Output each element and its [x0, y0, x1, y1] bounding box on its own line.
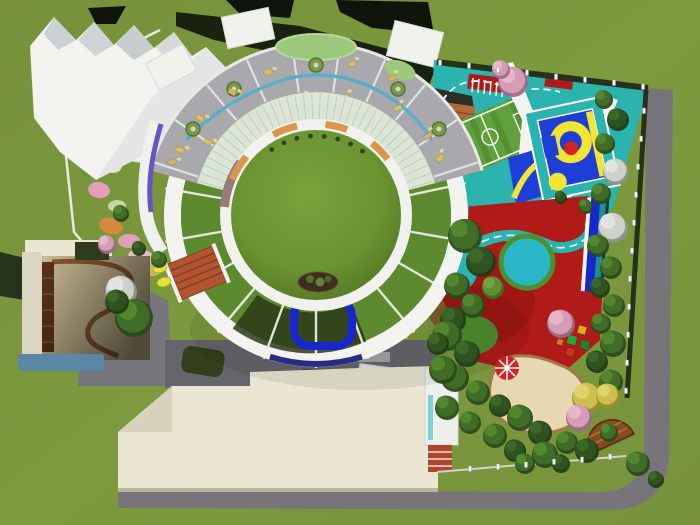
classroom-furniture: [348, 61, 357, 67]
tree-highlight: [649, 472, 657, 480]
fence-post: [609, 454, 612, 460]
fence-post: [468, 63, 471, 69]
tree-highlight: [460, 412, 471, 423]
tree-highlight: [463, 294, 475, 306]
tree-highlight: [428, 333, 439, 344]
fence-post: [555, 74, 558, 80]
fence-post: [625, 388, 628, 394]
splash-circle: [501, 236, 553, 288]
tree-highlight: [490, 395, 501, 406]
roof-edge: [118, 488, 438, 492]
tree-highlight: [587, 351, 598, 362]
fence-post: [497, 464, 500, 470]
west-hedge: [0, 252, 25, 300]
fence-post: [633, 220, 636, 226]
fence-post: [626, 360, 629, 366]
tree-highlight: [431, 357, 445, 371]
campus-aerial-render: [0, 0, 700, 525]
shrub: [335, 137, 340, 142]
fence-post: [526, 70, 529, 76]
tree-highlight: [509, 406, 522, 419]
tree-highlight: [505, 440, 516, 451]
tree-highlight: [577, 439, 589, 451]
tree-highlight: [483, 277, 494, 288]
fence-post: [628, 304, 631, 310]
fence-post: [553, 459, 556, 465]
tree-highlight: [133, 241, 140, 248]
fence-post: [627, 332, 630, 338]
play-block: [556, 338, 563, 345]
island-center: [437, 127, 442, 132]
roof-pond: [276, 34, 356, 60]
tree-highlight: [534, 443, 547, 456]
fence-post: [497, 67, 500, 73]
fence-post: [642, 84, 645, 90]
planter-shrub: [306, 275, 314, 283]
tree-highlight: [468, 248, 483, 263]
tree-highlight: [549, 311, 563, 325]
fence-post: [635, 192, 638, 198]
fence-post: [584, 77, 587, 83]
play-block: [567, 335, 578, 346]
tree-highlight: [580, 199, 587, 206]
fence-post: [525, 462, 528, 468]
tree-highlight: [601, 257, 612, 268]
water-channel: [18, 354, 104, 371]
tree-highlight: [574, 384, 589, 399]
tree-highlight: [596, 91, 605, 100]
shrub: [269, 147, 274, 152]
annex-glass: [428, 395, 433, 440]
tree-highlight: [601, 370, 613, 382]
shrub: [360, 149, 365, 154]
tree-highlight: [596, 134, 606, 144]
play-block: [577, 325, 587, 335]
tree-highlight: [555, 191, 561, 197]
tree-highlight: [107, 290, 119, 302]
shrub: [308, 134, 313, 139]
tree-highlight: [451, 220, 468, 237]
play-block: [580, 340, 591, 351]
tree-highlight: [628, 452, 640, 464]
tree-highlight: [592, 314, 602, 324]
fence-post: [631, 248, 634, 254]
shrub: [348, 142, 353, 147]
shrub: [294, 136, 299, 141]
tree-highlight: [568, 406, 581, 419]
island-center: [396, 87, 401, 92]
tree-highlight: [99, 236, 108, 245]
fence-post: [469, 466, 472, 472]
fence-post: [637, 164, 640, 170]
planter-shrub-2: [316, 278, 325, 287]
tree-highlight: [530, 421, 542, 433]
tree-highlight: [588, 235, 599, 246]
west-wall: [22, 252, 42, 360]
fence-post: [643, 108, 646, 114]
tree-highlight: [446, 274, 459, 287]
tree-highlight: [601, 424, 610, 433]
fence-post: [629, 276, 632, 282]
tree-highlight: [605, 160, 618, 173]
tree-highlight: [602, 332, 615, 345]
planter-shrub-3: [325, 276, 332, 283]
shrub: [281, 140, 286, 145]
tree-highlight: [557, 432, 568, 443]
tree-highlight: [598, 384, 610, 396]
classroom-furniture: [264, 69, 273, 75]
tree-highlight: [456, 342, 469, 355]
tree-highlight: [437, 396, 449, 408]
tree-highlight: [152, 252, 160, 260]
tree-highlight: [591, 278, 601, 288]
tree-highlight: [604, 295, 615, 306]
tree-highlight: [442, 308, 455, 321]
tree-highlight: [592, 184, 602, 194]
fence-post: [581, 457, 584, 463]
tree-highlight: [468, 381, 480, 393]
fence-post: [640, 136, 643, 142]
shrub: [322, 134, 327, 139]
play-block: [565, 347, 575, 357]
fence-post: [439, 60, 442, 66]
fence-post: [613, 80, 616, 86]
tree-highlight: [600, 214, 615, 229]
tree-highlight: [114, 206, 122, 214]
tree-highlight: [485, 424, 497, 436]
island-center: [314, 63, 319, 68]
tree-highlight: [608, 109, 619, 120]
island-center: [191, 127, 196, 132]
